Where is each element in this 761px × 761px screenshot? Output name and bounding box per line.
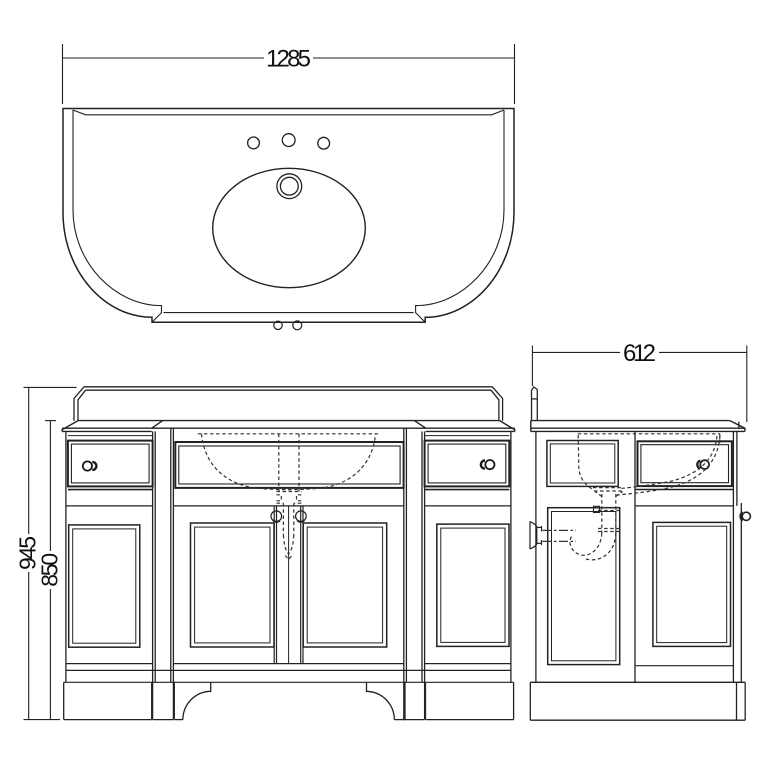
svg-text:1285: 1285: [266, 46, 311, 73]
svg-text:850: 850: [37, 553, 63, 587]
svg-text:612: 612: [623, 340, 656, 367]
